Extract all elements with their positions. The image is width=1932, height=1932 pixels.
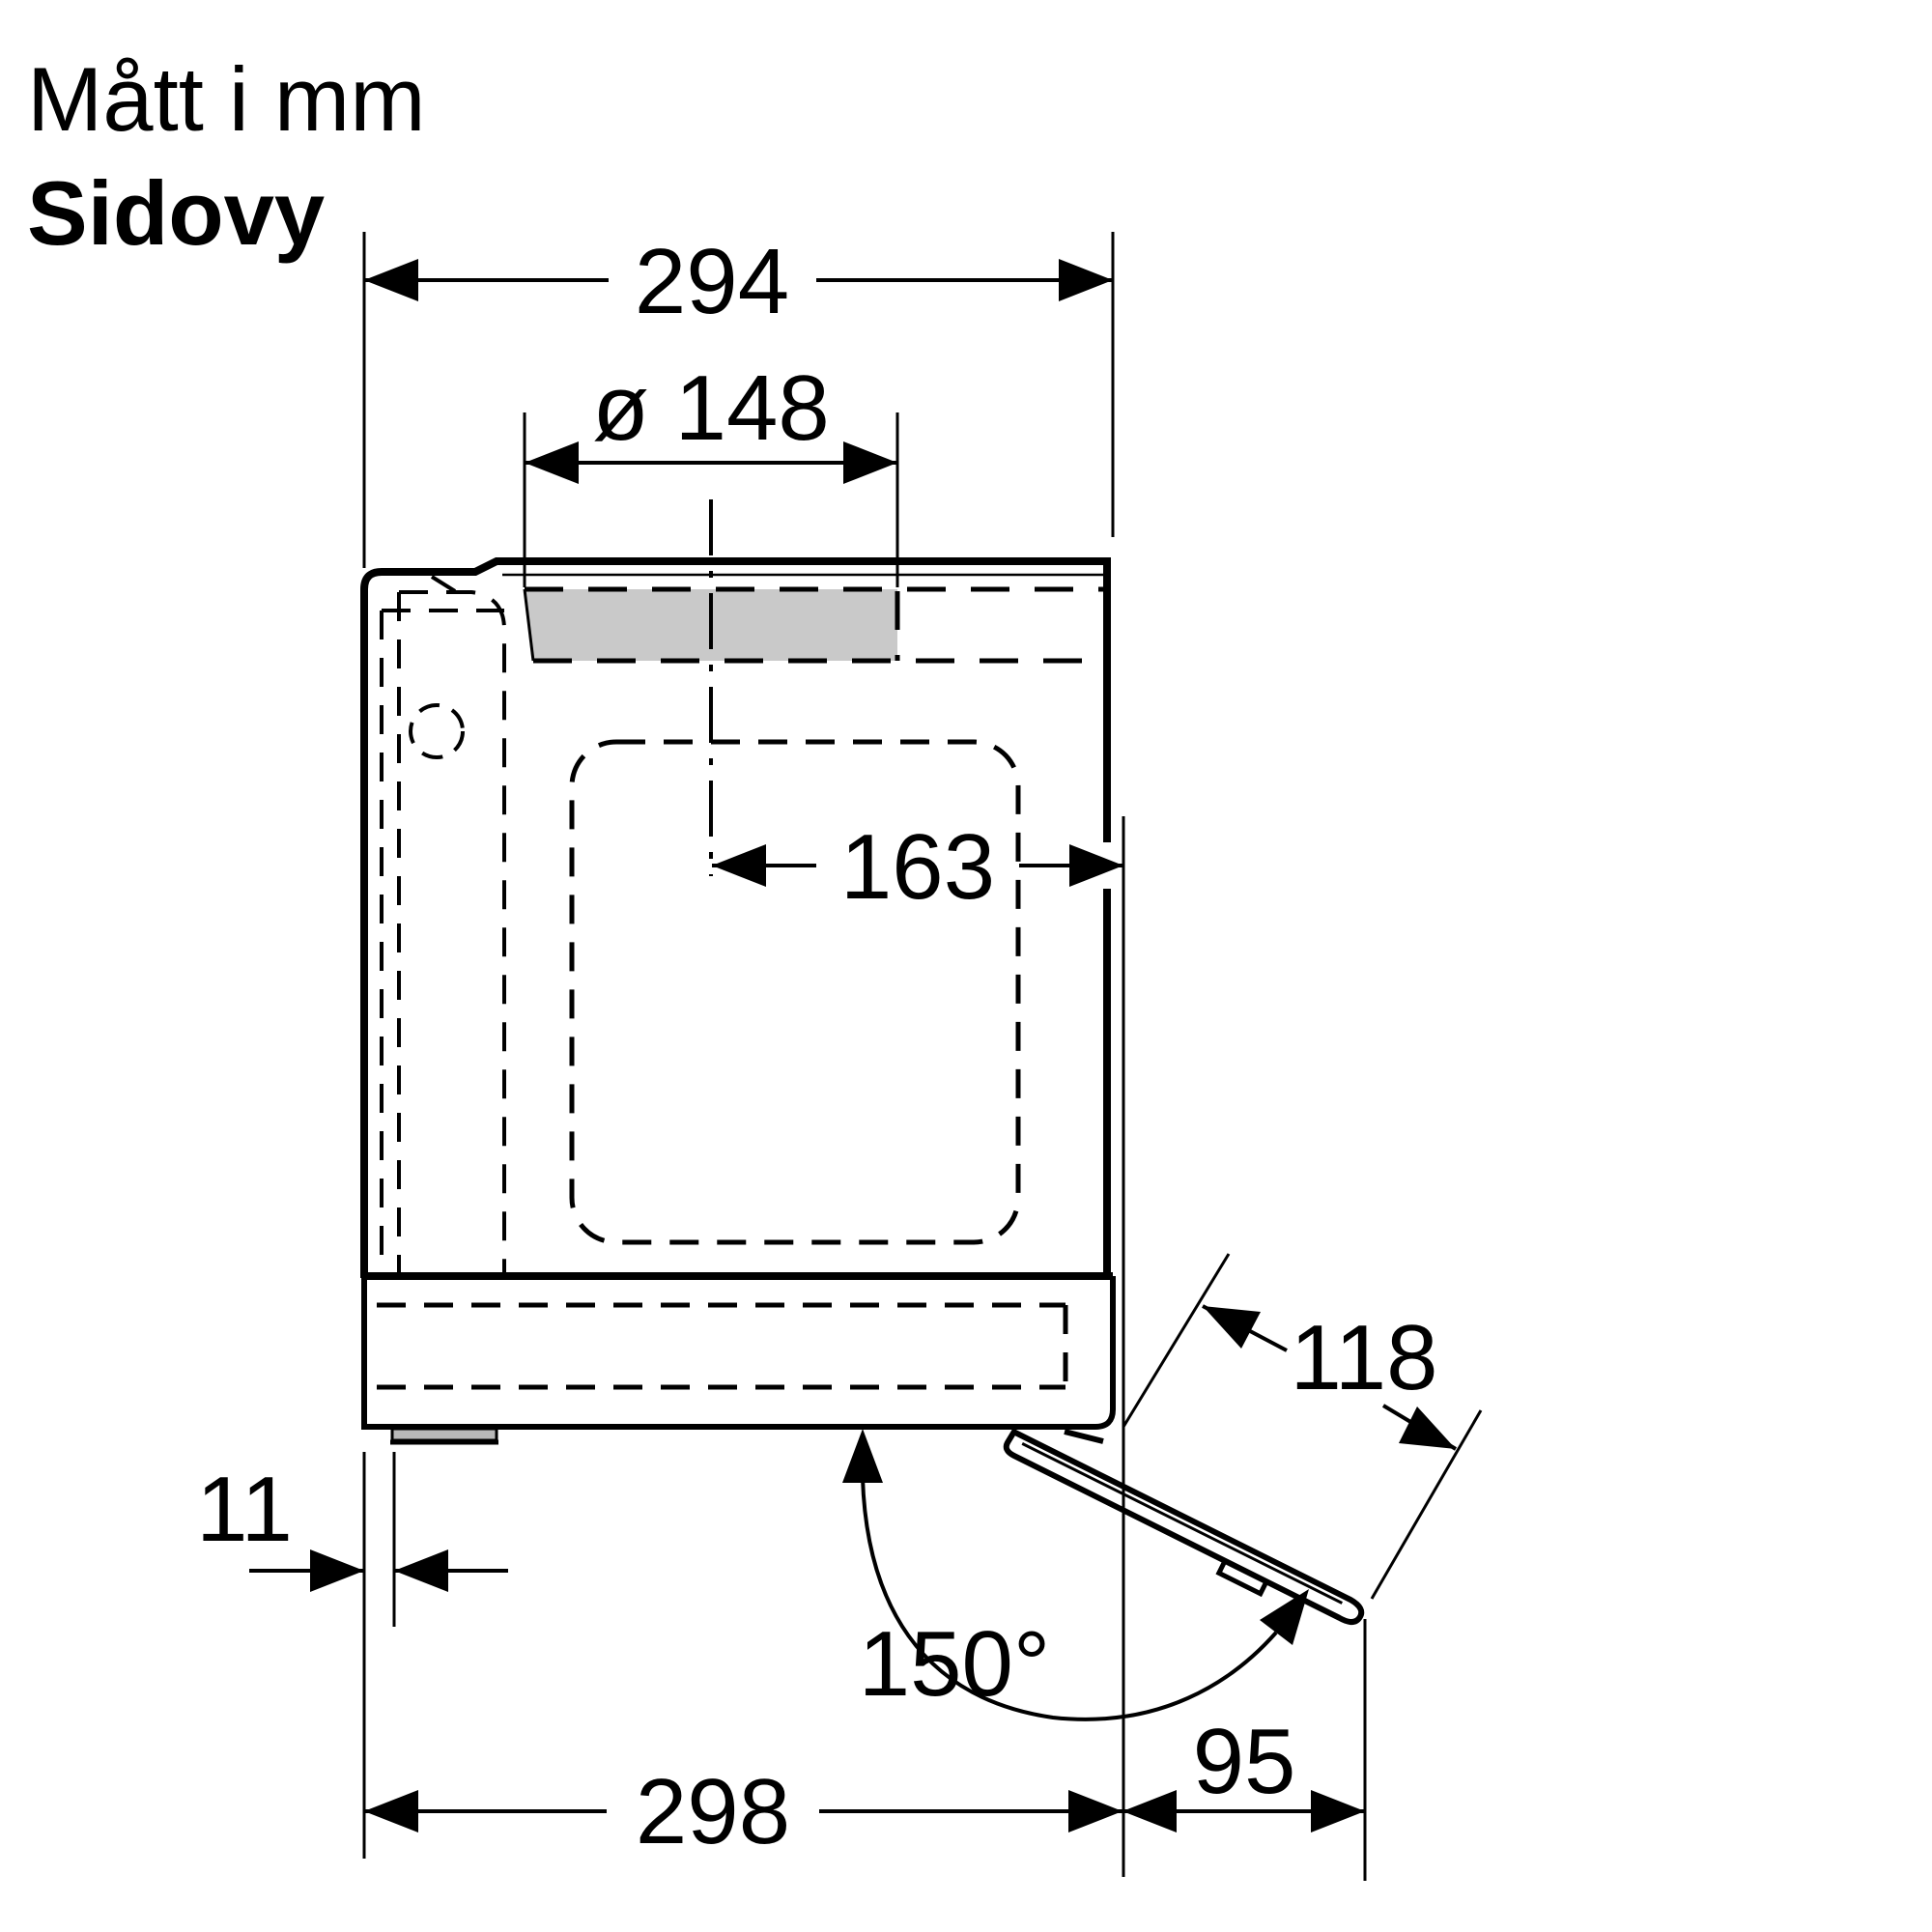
dim-298-label: 298: [636, 1760, 790, 1863]
dim-294-arrowhead-left: [364, 259, 418, 301]
door-flap-open: [998, 1432, 1365, 1638]
dim-150deg-arrowhead-top: [842, 1429, 883, 1483]
dim-11-arrowhead-right: [394, 1549, 448, 1592]
dim-298: 298: [364, 1760, 1122, 1863]
vent-cutout: [525, 589, 1107, 661]
dim-118: 118: [1123, 1254, 1481, 1599]
dim-95-arrowhead-right: [1311, 1790, 1365, 1833]
inner-duct-outline: [399, 592, 504, 1273]
flap-inner-line: [1022, 1443, 1342, 1603]
dim-148-label: ø 148: [592, 356, 829, 460]
title-block: Mått i mm Sidovy: [27, 48, 426, 264]
dim-294-arrowhead-right: [1059, 259, 1113, 301]
dim-294-label: 294: [635, 230, 789, 333]
dim-95-arrowhead-left: [1122, 1790, 1177, 1833]
dim-118-arrowhead-lower: [1399, 1406, 1456, 1449]
body-outline: [364, 561, 1107, 1278]
internal-hidden-lines: [377, 577, 1065, 1387]
view-title: Sidovy: [27, 162, 325, 264]
flap-panel-group: [998, 1432, 1365, 1638]
dim-11-label: 11: [196, 1458, 293, 1561]
dim-150deg-label: 150°: [859, 1612, 1051, 1716]
dim-95-label: 95: [1193, 1710, 1296, 1813]
inner-pivot-circle: [411, 705, 463, 757]
drawer-hidden-lines: [377, 1305, 1065, 1387]
page-title: Mått i mm: [27, 48, 426, 150]
dim-163-arrowhead-left: [712, 844, 766, 887]
dim-118-ext-near: [1123, 1254, 1229, 1427]
dim-298-arrowhead-left: [364, 1790, 418, 1833]
side-view-diagram: 294 ø 148 163 11 150°: [0, 0, 1932, 1932]
foot-block: [392, 1429, 497, 1440]
dim-95: 95: [1122, 1619, 1365, 1881]
base-outline: [364, 1276, 1113, 1427]
dim-11-arrowhead-left: [310, 1549, 364, 1592]
appliance-body: [361, 561, 1113, 1442]
inner-corner-diagonal: [432, 577, 455, 591]
dim-298-arrowhead-right: [1068, 1790, 1122, 1833]
dim-11: 11: [196, 1452, 508, 1859]
dim-148-arrowhead-right: [843, 441, 897, 484]
flap-hinge-mark: [1065, 1432, 1103, 1441]
diagram-page: 294 ø 148 163 11 150°: [0, 0, 1932, 1932]
dim-118-label: 118: [1290, 1306, 1437, 1409]
dim-148-arrowhead-left: [525, 441, 579, 484]
dim-163-arrowhead-right: [1069, 844, 1123, 887]
dim-163-label: 163: [840, 815, 995, 919]
appliance-foot: [390, 1429, 498, 1442]
dim-118-arrowhead-upper: [1203, 1306, 1261, 1349]
dim-150deg-arrowhead-end: [1260, 1589, 1309, 1645]
